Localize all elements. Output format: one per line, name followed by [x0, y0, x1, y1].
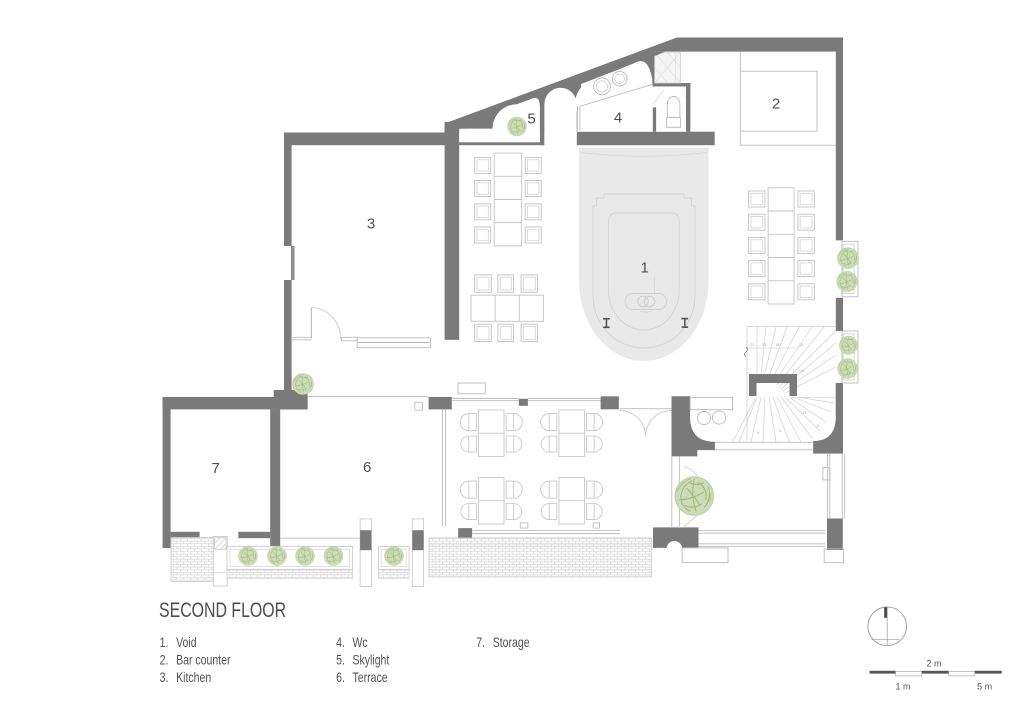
- svg-text:22: 22: [750, 342, 755, 347]
- svg-text:6: 6: [363, 459, 371, 476]
- svg-text:4.: 4.: [336, 635, 345, 651]
- svg-text:5: 5: [527, 111, 535, 128]
- svg-text:Bar counter: Bar counter: [176, 652, 230, 668]
- svg-text:5: 5: [757, 430, 760, 435]
- svg-text:13: 13: [802, 410, 807, 415]
- svg-text:18: 18: [775, 342, 780, 347]
- svg-text:7: 7: [212, 460, 220, 477]
- svg-text:2.: 2.: [160, 652, 169, 668]
- svg-text:5.: 5.: [336, 652, 345, 668]
- svg-text:9: 9: [779, 428, 782, 433]
- svg-text:1: 1: [641, 260, 649, 277]
- svg-text:4: 4: [614, 110, 622, 127]
- svg-text:11: 11: [816, 423, 821, 428]
- svg-text:Terrace: Terrace: [353, 670, 388, 686]
- svg-text:1 m: 1 m: [895, 682, 910, 692]
- svg-text:3.: 3.: [160, 670, 169, 686]
- svg-text:Kitchen: Kitchen: [176, 670, 211, 686]
- svg-text:1.: 1.: [160, 635, 169, 651]
- svg-text:5 m: 5 m: [977, 682, 992, 692]
- svg-text:Skylight: Skylight: [353, 652, 390, 668]
- svg-text:7.: 7.: [476, 635, 485, 651]
- svg-text:2: 2: [772, 96, 780, 113]
- svg-text:16: 16: [800, 368, 805, 373]
- svg-text:3: 3: [367, 215, 375, 232]
- svg-text:Storage: Storage: [493, 635, 530, 651]
- svg-text:6.: 6.: [336, 670, 345, 686]
- svg-text:SECOND FLOOR: SECOND FLOOR: [159, 598, 286, 622]
- svg-text:Void: Void: [176, 635, 196, 651]
- svg-text:15: 15: [799, 342, 804, 347]
- svg-text:Wc: Wc: [353, 635, 368, 651]
- svg-text:2 m: 2 m: [926, 659, 941, 669]
- svg-text:21: 21: [762, 342, 767, 347]
